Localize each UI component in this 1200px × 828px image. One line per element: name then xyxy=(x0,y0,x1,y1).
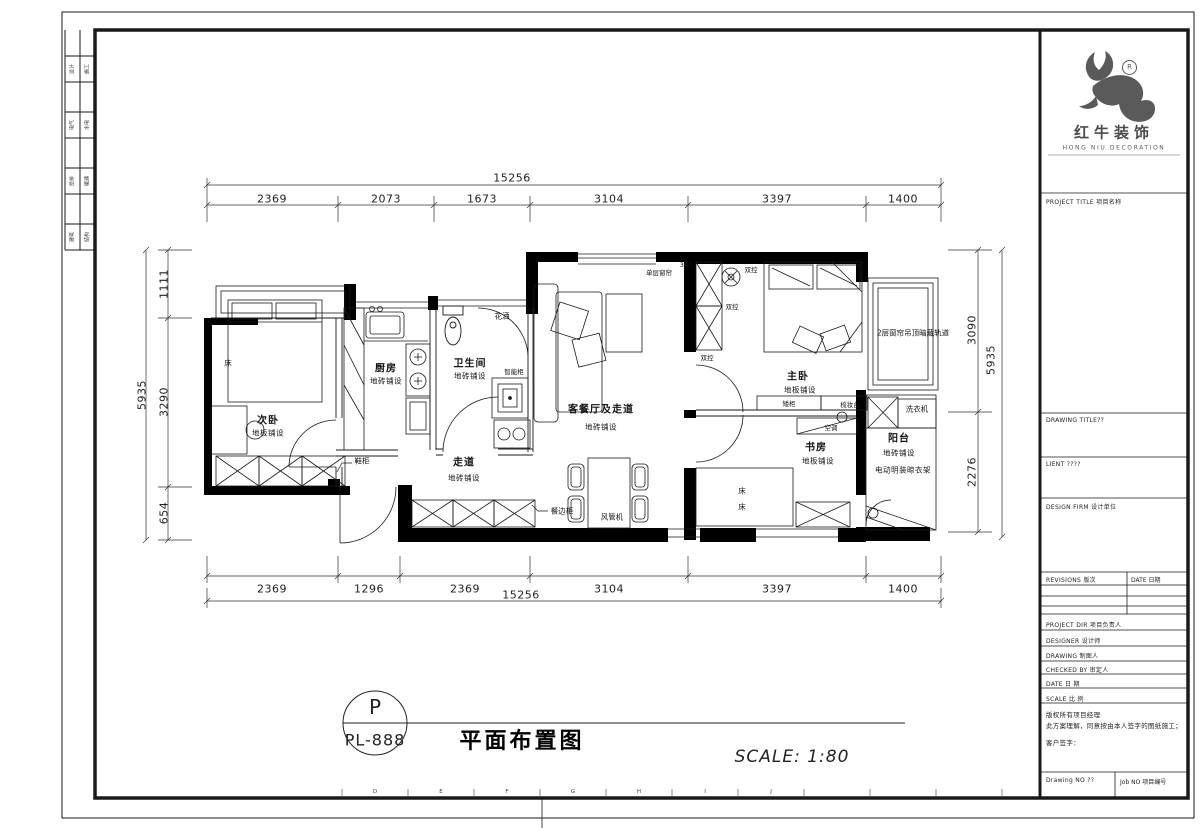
label-curtain-track: 2层窗帘吊顶暗藏轨道 xyxy=(877,328,949,339)
room-bedroom2: 次卧 xyxy=(257,412,279,427)
discipline-cell: 电气 xyxy=(69,120,76,130)
brand-name-cn: 红牛装饰 xyxy=(1074,122,1154,143)
dim-bottom-seg: 3104 xyxy=(594,583,624,596)
room-corridor-finish: 地砖铺设 xyxy=(448,473,480,484)
master-door xyxy=(696,365,743,412)
dim-right-total: 5935 xyxy=(985,345,998,375)
discipline-cell: 给排 xyxy=(69,176,76,186)
drawing-sheet: 15256 2369 2073 1673 3104 3397 1400 2369… xyxy=(0,0,1200,828)
label-vanity: 智能柜 xyxy=(504,366,524,376)
tb-note2: 此方案理解，同意按由本人签字的图纸施工； xyxy=(1046,720,1182,730)
room-balcony-extra: 电动明装晾衣架 xyxy=(875,465,931,476)
dim-left-seg: 654 xyxy=(158,502,171,525)
tb-row: DRAWING 制图人 xyxy=(1046,651,1098,660)
room-balcony-finish: 地砖铺设 xyxy=(883,448,915,459)
label-shoe-cabinet: 鞋柜 xyxy=(355,456,370,467)
sheet-frame xyxy=(62,12,1194,828)
tb-client: LIENT ???? xyxy=(1046,461,1081,468)
tb-row: CHECKED BY 审定人 xyxy=(1046,665,1109,674)
grid-letter: J xyxy=(770,789,772,795)
grid-letter: D xyxy=(373,789,377,795)
master-bed xyxy=(764,262,862,353)
dim-top-seg: 1673 xyxy=(467,193,497,206)
room-master-finish: 地板铺设 xyxy=(784,385,816,396)
room-kitchen: 厨房 xyxy=(375,360,397,375)
room-living-finish: 地砖铺设 xyxy=(585,422,617,433)
dim-top-seg: 2369 xyxy=(257,193,287,206)
grid-letter: H xyxy=(637,789,641,795)
title-tag-letter: P xyxy=(369,695,381,719)
master-wardrobe xyxy=(696,262,722,350)
room-bathroom-finish: 地砖铺设 xyxy=(454,371,486,382)
study-wardrobe xyxy=(796,502,850,527)
registered-mark-icon: R xyxy=(1122,60,1137,75)
title-block-rules xyxy=(1040,193,1188,798)
dim-top-total: 15256 xyxy=(493,172,531,185)
tb-row: DATE 日 期 xyxy=(1046,679,1080,688)
tb-design-firm: DESIGN FIRM 设计单位 xyxy=(1046,502,1116,511)
label-switch: 双控 xyxy=(745,264,758,274)
tb-row: SCALE 比 例 xyxy=(1046,694,1084,703)
brand-logo-bull-icon xyxy=(1079,51,1155,122)
dim-bottom-seg: 2369 xyxy=(257,583,287,596)
label-duct-ac: 风管机 xyxy=(601,512,624,523)
label-ac: 空调 xyxy=(825,422,838,432)
balcony-drying-area xyxy=(866,506,936,530)
bathroom-door xyxy=(443,397,498,452)
discipline-cell: 暖通 xyxy=(84,176,91,186)
dim-top-seg: 3104 xyxy=(594,193,624,206)
dim-bottom-seg: 1400 xyxy=(888,583,918,596)
label-low-cabinet: 矮柜 xyxy=(783,398,796,408)
room-kitchen-finish: 地砖铺设 xyxy=(370,376,402,387)
discipline-cell: 结构 xyxy=(84,232,91,242)
label-switch: 双控 xyxy=(701,352,714,362)
title-tag-code: PL-888 xyxy=(345,731,406,750)
tb-row: PROJECT DIR 项目负责人 xyxy=(1046,620,1121,629)
label-bed-study: 床 xyxy=(738,486,746,497)
grid-letter: E xyxy=(439,789,442,795)
dim-right-seg: 2276 xyxy=(966,457,979,487)
entry-door xyxy=(340,487,396,543)
grid-letter: I xyxy=(704,789,706,795)
discipline-cell: 设计 xyxy=(69,64,76,74)
room-corridor: 走道 xyxy=(453,454,475,469)
dim-top-seg: 3397 xyxy=(762,193,792,206)
room-study-finish: 地板铺设 xyxy=(802,456,834,467)
tb-job-no: Job NO 项目编号 xyxy=(1120,777,1166,786)
partitions xyxy=(211,308,856,486)
discipline-cell: 建筑 xyxy=(69,232,76,242)
dim-bottom-seg: 2369 xyxy=(450,583,480,596)
dim-bottom-seg: 3397 xyxy=(762,583,792,596)
dimension-lines xyxy=(143,178,1005,608)
room-bedroom2-finish: 地板铺设 xyxy=(252,428,284,439)
label-switch: 双控 xyxy=(726,301,739,311)
tb-revisions: REVISIONS 版次 xyxy=(1046,575,1096,584)
dim-right-seg: 3090 xyxy=(966,315,979,345)
leader-lines xyxy=(337,463,548,511)
discipline-cell: 水电 xyxy=(84,120,91,130)
grid-letter: G xyxy=(571,789,575,795)
label-bed-study: 床 xyxy=(738,502,746,513)
bedroom2-bed xyxy=(228,300,322,402)
room-living: 客餐厅及走道 xyxy=(568,401,634,416)
dim-top-seg: 1400 xyxy=(888,193,918,206)
label-350: 350 xyxy=(680,261,692,269)
toilet xyxy=(443,306,463,345)
dim-left-total: 5935 xyxy=(136,380,149,410)
tb-drawing-title: DRAWING TITLE?? xyxy=(1046,417,1104,424)
sideboard-cabinet xyxy=(412,500,535,527)
dim-left-seg: 3290 xyxy=(158,387,171,417)
tb-project-title: PROJECT TITLE 项目名称 xyxy=(1046,197,1121,206)
tb-drawing-no: Drawing NO ?? xyxy=(1046,777,1094,784)
grid-letter: F xyxy=(505,789,508,795)
dim-left-seg: 1111 xyxy=(158,269,171,299)
ceiling-lamp xyxy=(722,268,740,286)
brand-name-en: HONG NIU DECORATION xyxy=(1063,145,1166,152)
study-door xyxy=(696,415,743,462)
sheet-title: 平面布置图 xyxy=(459,723,584,755)
room-master: 主卧 xyxy=(787,368,809,383)
dim-bottom-seg: 1296 xyxy=(354,583,384,596)
sheet-scale: SCALE: 1:80 xyxy=(735,747,850,767)
titlebar-graphics xyxy=(343,691,905,755)
label-curtain-single: 单层窗帘 xyxy=(646,267,672,277)
tb-row: DESIGNER 设计师 xyxy=(1046,636,1101,645)
room-balcony: 阳台 xyxy=(888,430,910,445)
tb-date-col: DATE 日期 xyxy=(1131,575,1161,584)
room-bathroom: 卫生间 xyxy=(454,355,487,370)
dim-top-seg: 2073 xyxy=(371,193,401,206)
bathroom-vanity xyxy=(492,378,530,448)
study-bed xyxy=(696,468,793,526)
label-shower: 花洒 xyxy=(495,311,510,322)
dim-bottom-total: 15256 xyxy=(502,589,540,602)
tb-note1: 版权所有项目经理 xyxy=(1046,709,1100,719)
label-washer: 洗衣机 xyxy=(906,404,929,415)
label-dresser: 梳妆台 xyxy=(840,399,860,409)
discipline-cell: 施工 xyxy=(84,64,91,74)
label-sideboard: 餐边柜 xyxy=(551,506,574,517)
tb-note3: 客户签字： xyxy=(1046,737,1080,747)
room-study: 书房 xyxy=(805,439,827,454)
label-bed: 床 xyxy=(224,358,232,369)
bedroom2-wardrobe xyxy=(216,456,345,486)
coffee-table xyxy=(606,294,642,352)
